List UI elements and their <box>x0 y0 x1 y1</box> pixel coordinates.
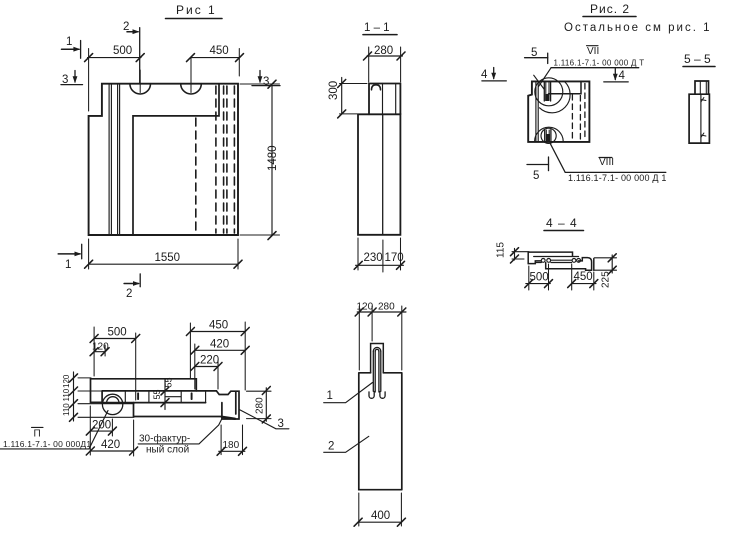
svg-text:П: П <box>34 429 41 440</box>
svg-text:230: 230 <box>364 252 383 264</box>
svg-text:4 – 4: 4 – 4 <box>546 216 578 230</box>
svg-text:115: 115 <box>496 242 507 258</box>
svg-text:500: 500 <box>108 327 127 339</box>
svg-text:180: 180 <box>223 440 240 451</box>
svg-text:Остальное см рис. 1: Остальное см рис. 1 <box>564 22 711 34</box>
svg-text:120: 120 <box>92 342 109 353</box>
svg-text:1: 1 <box>65 259 71 271</box>
svg-text:110: 110 <box>62 388 71 401</box>
svg-text:4: 4 <box>619 70 626 82</box>
svg-text:1.116.1-7.1- 00 000 Д Т: 1.116.1-7.1- 00 000 Д Т <box>554 59 645 68</box>
svg-text:VII: VII <box>587 46 599 57</box>
svg-text:3: 3 <box>278 418 284 430</box>
svg-text:1.116.1-7.1- 00 000Д1: 1.116.1-7.1- 00 000Д1 <box>3 439 91 449</box>
svg-text:420: 420 <box>101 439 120 451</box>
svg-text:120: 120 <box>357 302 374 313</box>
svg-text:1550: 1550 <box>155 252 181 264</box>
svg-text:500: 500 <box>530 272 549 284</box>
svg-text:2: 2 <box>328 441 334 453</box>
svg-text:400: 400 <box>371 510 390 522</box>
svg-text:4: 4 <box>481 69 488 81</box>
svg-text:500: 500 <box>113 45 132 57</box>
svg-text:450: 450 <box>210 45 229 57</box>
svg-text:450: 450 <box>209 320 228 332</box>
svg-text:55: 55 <box>152 389 162 399</box>
svg-text:Рис. 2: Рис. 2 <box>590 2 630 16</box>
svg-text:5: 5 <box>533 170 539 182</box>
svg-text:ный слой: ный слой <box>146 445 189 456</box>
svg-text:420: 420 <box>210 339 229 351</box>
svg-text:1 – 1: 1 – 1 <box>364 22 390 34</box>
svg-text:220: 220 <box>200 355 219 367</box>
svg-text:280: 280 <box>374 45 393 57</box>
svg-text:300: 300 <box>328 81 340 100</box>
svg-text:2: 2 <box>126 288 132 300</box>
svg-text:200: 200 <box>92 420 111 432</box>
svg-text:Рис 1: Рис 1 <box>176 3 217 17</box>
svg-text:1.116.1-7.1- 00 000 Д 1: 1.116.1-7.1- 00 000 Д 1 <box>568 173 667 183</box>
svg-text:1: 1 <box>66 36 72 48</box>
svg-text:VIII: VIII <box>599 157 614 168</box>
svg-text:55: 55 <box>164 377 174 387</box>
svg-text:450: 450 <box>574 271 593 283</box>
svg-text:120: 120 <box>62 374 71 388</box>
svg-text:225: 225 <box>601 271 612 288</box>
svg-text:280: 280 <box>255 397 266 414</box>
svg-text:1: 1 <box>327 390 333 402</box>
svg-text:280: 280 <box>378 302 395 313</box>
svg-text:170: 170 <box>385 252 404 264</box>
svg-text:5 – 5: 5 – 5 <box>684 52 711 66</box>
svg-text:1480: 1480 <box>267 145 279 171</box>
svg-text:30-фактур-: 30-фактур- <box>139 433 190 445</box>
svg-text:110: 110 <box>62 403 71 416</box>
